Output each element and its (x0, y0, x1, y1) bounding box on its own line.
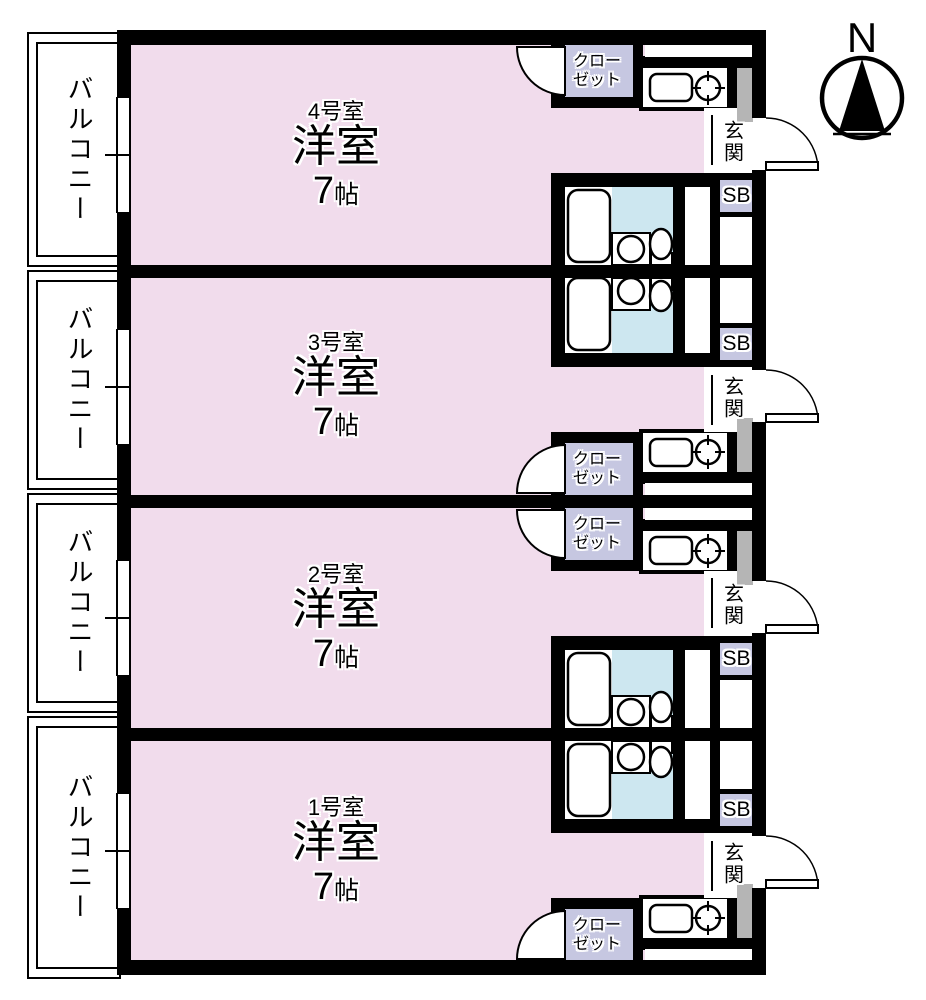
bath-hallway (685, 741, 710, 819)
balcony-unit-2: バルコニー (27, 493, 121, 713)
bath-hallway (685, 187, 710, 265)
room-type: 洋室 (292, 123, 380, 171)
balcony-inner: バルコニー (36, 42, 123, 257)
room-number: 2号室 (308, 563, 364, 586)
closet-label-line2: ゼット (573, 935, 621, 954)
closet-label-line2: ゼット (573, 534, 621, 553)
bath-floor (612, 278, 673, 353)
window-center-mark (105, 617, 129, 619)
shoe-box-label: SB (720, 328, 753, 360)
kitchen-window (645, 507, 753, 520)
room-size: 7帖 (313, 868, 359, 906)
kitchen-counter (643, 531, 727, 570)
balcony-label: バルコニー (61, 528, 98, 678)
bath-floor (612, 650, 673, 728)
entry-door-leaf (766, 162, 818, 170)
window-center-mark (105, 850, 129, 852)
shoe-box-label: SB (720, 643, 753, 675)
balcony-unit-1: バルコニー (27, 716, 121, 979)
entry-door-leaf (766, 880, 818, 888)
room-size: 7帖 (313, 403, 359, 441)
balcony-unit-4: バルコニー (27, 32, 121, 267)
shoe-box-label: SB (720, 794, 753, 826)
room-number: 3号室 (308, 331, 364, 354)
balcony-inner: バルコニー (36, 726, 123, 969)
room-label-unit-1: 1号室 洋室 7帖 (226, 789, 446, 913)
closet-label-line1: クロー (573, 52, 621, 71)
entrance-label: 玄関 (712, 111, 752, 173)
shoe-box-label: SB (720, 180, 753, 212)
closet-label: クローゼット (551, 443, 643, 495)
closet-label-line1: クロー (573, 450, 621, 469)
kitchen-counter (643, 68, 727, 107)
room-number: 4号室 (308, 100, 364, 123)
kitchen-window (645, 44, 753, 57)
room-type: 洋室 (292, 819, 380, 867)
entry-door-arc (766, 370, 818, 422)
kitchen-counter (643, 899, 727, 938)
room-size: 7帖 (313, 635, 359, 673)
entry-door-arc (766, 836, 818, 888)
closet-label-line1: クロー (573, 916, 621, 935)
bath-tub-room (565, 187, 612, 265)
wall-right-segment (752, 888, 766, 975)
entry-door-arc (766, 581, 818, 633)
closet-label: クローゼット (551, 508, 643, 560)
compass-circle (822, 58, 902, 138)
closet-label-line1: クロー (573, 515, 621, 534)
balcony-label: バルコニー (61, 75, 98, 225)
room-label-unit-3: 3号室 洋室 7帖 (226, 324, 446, 448)
wall-divider-3-2 (117, 495, 766, 508)
balcony-inner: バルコニー (36, 280, 123, 480)
room-type: 洋室 (292, 354, 380, 402)
entry-hall-lower (720, 278, 753, 323)
bath-floor (612, 187, 673, 265)
balcony-unit-3: バルコニー (27, 270, 121, 490)
compass-needle (839, 59, 885, 131)
window-center-mark (105, 386, 129, 388)
wall-divider-2-1 (117, 728, 766, 741)
balcony-label: バルコニー (61, 773, 98, 923)
room-label-unit-4: 4号室 洋室 7帖 (226, 93, 446, 217)
bath-floor (612, 741, 673, 819)
entry-door-leaf (766, 414, 818, 422)
bath-tub-room (565, 278, 612, 353)
wall-right-segment (752, 30, 766, 118)
north-label: N (838, 14, 886, 58)
entry-door-arc (766, 118, 818, 170)
closet-label: クローゼット (551, 45, 643, 97)
closet-label-line2: ゼット (573, 469, 621, 488)
bath-hallway (685, 650, 710, 728)
wall-bottom (117, 960, 766, 975)
window-center-mark (105, 154, 129, 156)
entrance-label: 玄関 (712, 574, 752, 636)
entry-hall-lower (720, 680, 753, 728)
bath-tub-room (565, 650, 612, 728)
entrance-label: 玄関 (712, 833, 752, 895)
closet-label-line2: ゼット (573, 71, 621, 90)
entry-hall-lower (720, 217, 753, 265)
room-label-unit-2: 2号室 洋室 7帖 (226, 556, 446, 680)
entry-hall-lower (720, 741, 753, 789)
bath-hallway (685, 278, 710, 353)
bath-tub-room (565, 741, 612, 819)
entry-door-leaf (766, 625, 818, 633)
wall-divider-4-3 (117, 265, 766, 278)
kitchen-counter (643, 433, 727, 472)
room-size: 7帖 (313, 172, 359, 210)
room-number: 1号室 (308, 796, 364, 819)
entrance-label: 玄関 (712, 367, 752, 429)
room-type: 洋室 (292, 586, 380, 634)
closet-label: クローゼット (551, 909, 643, 961)
balcony-label: バルコニー (61, 305, 98, 455)
balcony-inner: バルコニー (36, 503, 123, 703)
wall-top (117, 30, 766, 45)
floor-plan: バルコニー バルコニー バルコニー バルコニー クローゼットSB玄関クローゼット… (0, 0, 926, 1000)
